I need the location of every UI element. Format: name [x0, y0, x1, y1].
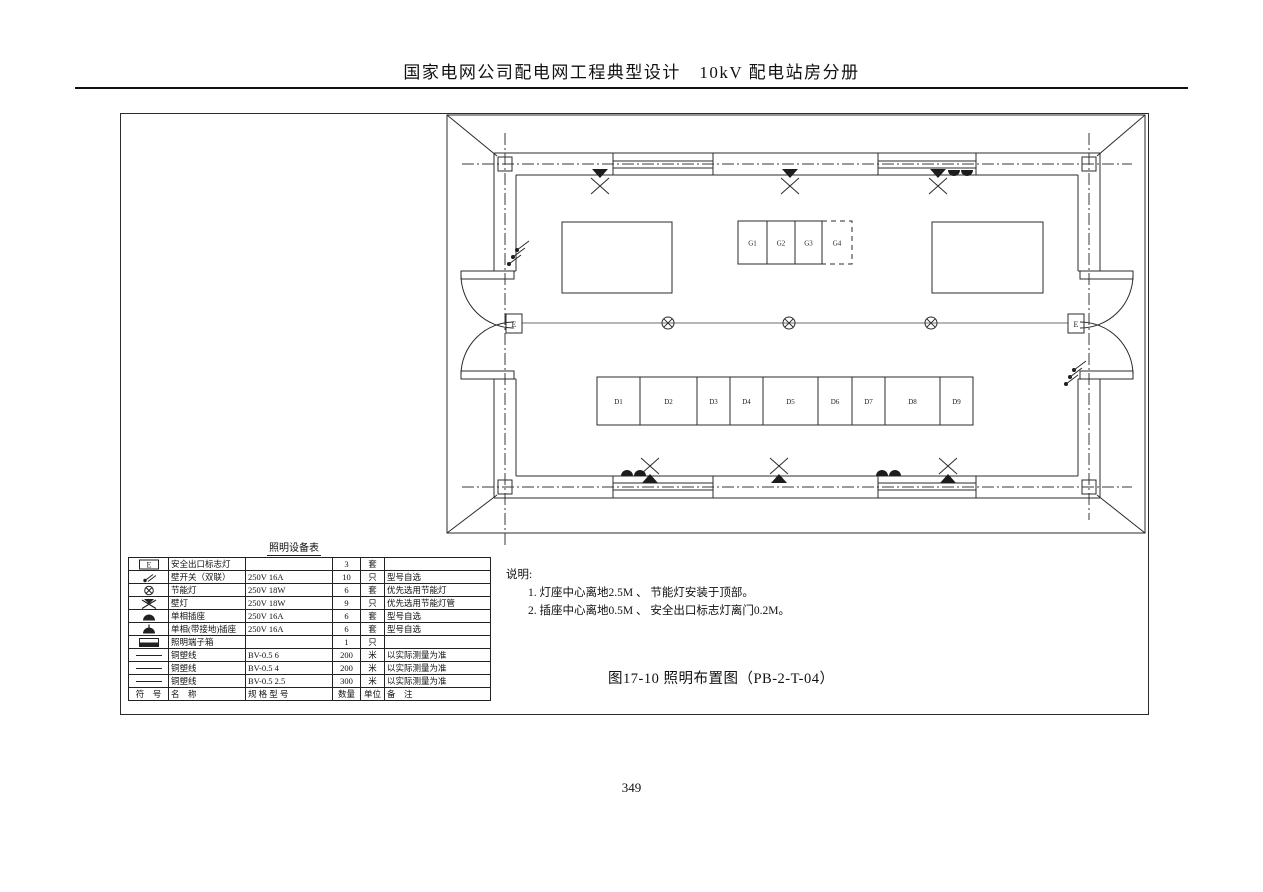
svg-text:E: E: [146, 560, 151, 569]
wall-lamp-icon: [939, 458, 957, 483]
table-footer-row: 符 号 名 称 规 格 型 号 数量 单位 备 注: [129, 688, 491, 701]
d-cell-label: D5: [786, 398, 795, 406]
notes-heading: 说明:: [506, 566, 790, 582]
notes: 说明: 1. 灯座中心离地2.5M 、 节能灯安装于顶部。 2. 插座中心离地0…: [506, 566, 790, 618]
grid-centerlines: [462, 133, 1132, 545]
exit-sign-icon: E: [136, 559, 162, 570]
exit-sign-icon: E: [506, 314, 522, 333]
wall-lamp-icon: [770, 458, 788, 483]
right-double-door: [1080, 271, 1133, 379]
d-cell-label: D3: [709, 398, 718, 406]
grounded-socket-icon: [136, 624, 162, 635]
table-row: 壁开关（双联） 250V 16A 10 只 型号自选: [129, 571, 491, 584]
terminal-box-icon: [136, 637, 162, 648]
figure-caption: 图17-10 照明布置图（PB-2-T-04）: [608, 667, 834, 688]
d-cell-label: D2: [664, 398, 673, 406]
g-cell-label: G1: [748, 240, 757, 248]
document-page: 国家电网公司配电网工程典型设计 10kV 配电站房分册: [0, 0, 1263, 892]
wall-lamp-icon: [781, 169, 799, 194]
wire-line-icon: [134, 676, 164, 687]
table-row: 壁灯 250V 18W 9 只 优先选用节能灯管: [129, 597, 491, 610]
g-cell-label: G4: [833, 240, 842, 248]
wall-switch-icon: [1064, 361, 1086, 386]
building-outline: [447, 115, 1145, 533]
wall-switch-icon: [136, 572, 162, 583]
svg-text:E: E: [1074, 320, 1079, 329]
d-cell-label: D1: [614, 398, 623, 406]
column-markers: [498, 157, 1096, 494]
table-row: 单相插座 250V 16A 6 套 型号自选: [129, 610, 491, 623]
d-cell-label: D9: [952, 398, 961, 406]
note-item: 2. 插座中心离地0.5M 、 安全出口标志灯离门0.2M。: [528, 602, 790, 618]
table-row: 铜塑线 BV-0.5 2.5 300 米 以实际测量为准: [129, 675, 491, 688]
wall-lamp-icon: [641, 458, 659, 483]
g-cell-label: G3: [804, 240, 813, 248]
d-cell-label: D7: [864, 398, 873, 406]
d-cell-label: D4: [742, 398, 751, 406]
d-cabinet-row: D1 D2 D3 D4 D5 D6 D7 D8 D9: [597, 377, 973, 425]
table-row: 铜塑线 BV-0.5 4 200 米 以实际测量为准: [129, 662, 491, 675]
walls: [494, 153, 1100, 498]
page-number: 349: [0, 780, 1263, 796]
wire-line-icon: [134, 663, 164, 674]
wall-lamp-icon: [136, 598, 162, 609]
svg-text:E: E: [512, 320, 517, 329]
equipment-table: E 安全出口标志灯 3 套 壁开关（: [128, 557, 491, 701]
table-row: 单相(带接地)插座 250V 16A 6 套 型号自选: [129, 623, 491, 636]
table-row: 铜塑线 BV-0.5 6 200 米 以实际测量为准: [129, 649, 491, 662]
wall-lamp-icon: [591, 169, 609, 194]
lighting-layout-drawing: E E G1 G2 G3 G4: [0, 0, 1263, 892]
d-cell-label: D8: [908, 398, 917, 406]
equipment-table-title: 照明设备表: [128, 539, 460, 554]
socket-icon: [136, 611, 162, 622]
wire-line-icon: [134, 650, 164, 661]
table-row: 节能灯 250V 18W 6 套 优先选用节能灯: [129, 584, 491, 597]
note-item: 1. 灯座中心离地2.5M 、 节能灯安装于顶部。: [528, 584, 790, 600]
exit-sign-icon: E: [1068, 314, 1084, 333]
socket-icon: [621, 470, 901, 476]
ceiling-lamp-line: [522, 317, 1068, 329]
equipment-boxes: [562, 222, 1043, 293]
g-cell-label: G2: [777, 240, 786, 248]
d-cell-label: D6: [831, 398, 840, 406]
table-row: 照明端子箱 1 只: [129, 636, 491, 649]
table-row: E 安全出口标志灯 3 套: [129, 558, 491, 571]
energy-saving-lamp-icon: [136, 585, 162, 596]
wall-switch-icon: [507, 241, 529, 266]
wall-lamp-icon: [929, 169, 947, 194]
g-cabinet-row: G1 G2 G3 G4: [738, 221, 852, 264]
